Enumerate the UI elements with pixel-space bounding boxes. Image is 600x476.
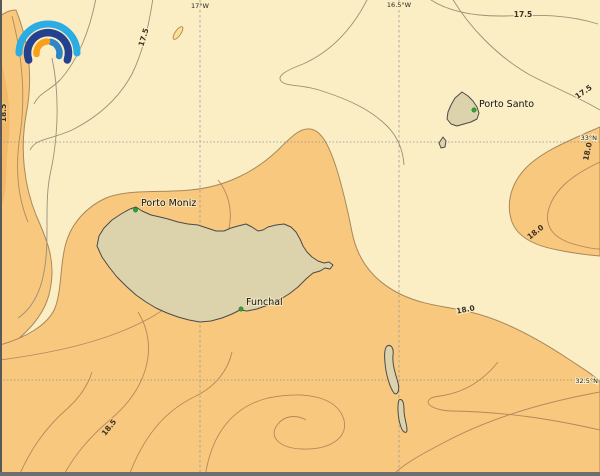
- city-marker-funchal: [239, 307, 243, 311]
- logo-arc-inner-blue: [51, 42, 59, 56]
- city-marker-porto-santo: [472, 108, 476, 112]
- contour-label-17-5: 17.5: [137, 27, 151, 47]
- warm-region-main: [0, 129, 600, 476]
- contour-label-17-5: 17.5: [573, 83, 593, 101]
- city-marker-porto-moniz: [133, 208, 137, 212]
- map-svg: 17°W 16.5°W 33°N 32.5°N 17.5 17.5 17.5 1…: [0, 0, 600, 476]
- place-label-funchal: Funchal: [246, 297, 283, 308]
- window-edge-bottom: [0, 472, 600, 476]
- porto-santo-islet: [439, 137, 446, 148]
- grid-label-33n: 33°N: [581, 134, 598, 142]
- place-label-porto-moniz: Porto Moniz: [141, 198, 196, 209]
- grid-label-32-5n: 32.5°N: [575, 377, 598, 385]
- logo-arc-orange: [36, 42, 47, 55]
- window-edge-left: [0, 0, 2, 476]
- small-closed-contour: [171, 25, 184, 40]
- weather-map-canvas: 17°W 16.5°W 33°N 32.5°N 17.5 17.5 17.5 1…: [0, 0, 600, 476]
- place-label-porto-santo: Porto Santo: [479, 99, 534, 110]
- grid-label-17w: 17°W: [191, 2, 210, 10]
- contour-label-17-5: 17.5: [514, 10, 533, 19]
- rainbow-logo: [19, 24, 77, 60]
- grid-label-16-5w: 16.5°W: [387, 1, 412, 9]
